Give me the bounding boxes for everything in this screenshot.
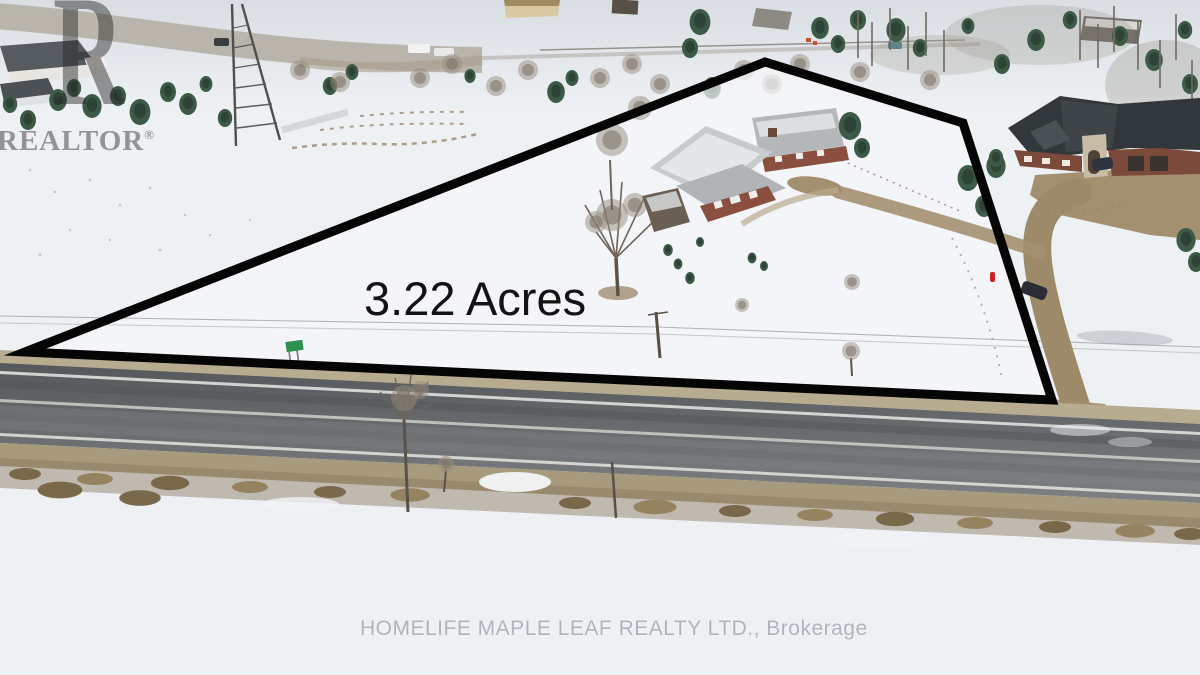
photo-scene bbox=[0, 0, 1200, 675]
aerial-listing-photo: 3.22 Acres R REALTOR® HOMELIFE MAPLE LEA… bbox=[0, 0, 1200, 675]
person bbox=[990, 272, 995, 282]
brokerage-watermark: HOMELIFE MAPLE LEAF REALTY LTD., Brokera… bbox=[360, 617, 868, 641]
realtor-watermark: REALTOR® bbox=[0, 127, 155, 156]
acreage-label: 3.22 Acres bbox=[364, 271, 586, 326]
realtor-watermark-text: REALTOR bbox=[0, 125, 144, 157]
registered-trademark-symbol: ® bbox=[144, 127, 155, 142]
realtor-logo-letter: R bbox=[53, 0, 124, 131]
